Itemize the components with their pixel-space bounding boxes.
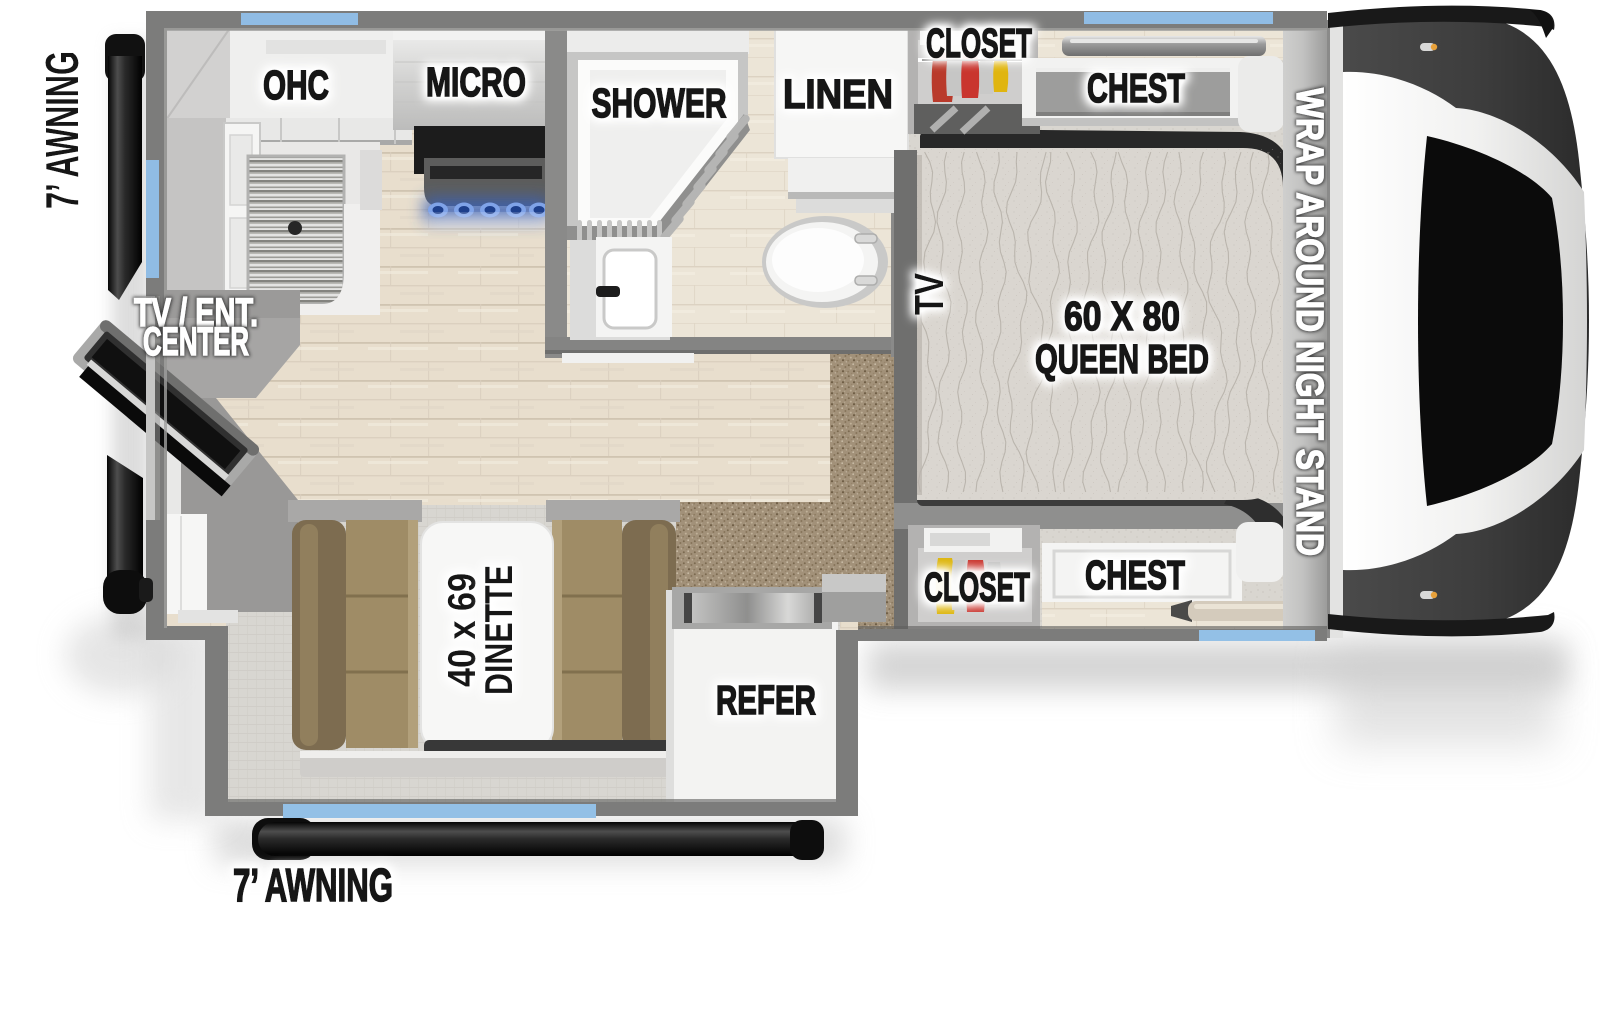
- svg-text:LINEN: LINEN: [783, 71, 893, 117]
- svg-text:60 X 80: 60 X 80: [1064, 293, 1180, 339]
- svg-text:REFER: REFER: [716, 677, 816, 723]
- svg-text:WRAP AROUND NIGHT STAND: WRAP AROUND NIGHT STAND: [1288, 88, 1330, 556]
- svg-text:TV: TV: [906, 272, 952, 315]
- svg-text:7’ AWNING: 7’ AWNING: [36, 51, 88, 209]
- svg-text:SHOWER: SHOWER: [592, 80, 727, 126]
- svg-text:7’ AWNING: 7’ AWNING: [233, 859, 393, 911]
- svg-text:MICRO: MICRO: [426, 59, 526, 105]
- svg-text:DINETTE: DINETTE: [478, 565, 521, 695]
- svg-text:CENTER: CENTER: [143, 320, 249, 364]
- svg-text:QUEEN BED: QUEEN BED: [1035, 336, 1209, 382]
- svg-text:OHC: OHC: [263, 62, 329, 108]
- svg-text:CHEST: CHEST: [1087, 65, 1185, 111]
- svg-text:CLOSET: CLOSET: [926, 20, 1032, 66]
- svg-text:CLOSET: CLOSET: [924, 564, 1030, 610]
- svg-text:CHEST: CHEST: [1085, 552, 1185, 598]
